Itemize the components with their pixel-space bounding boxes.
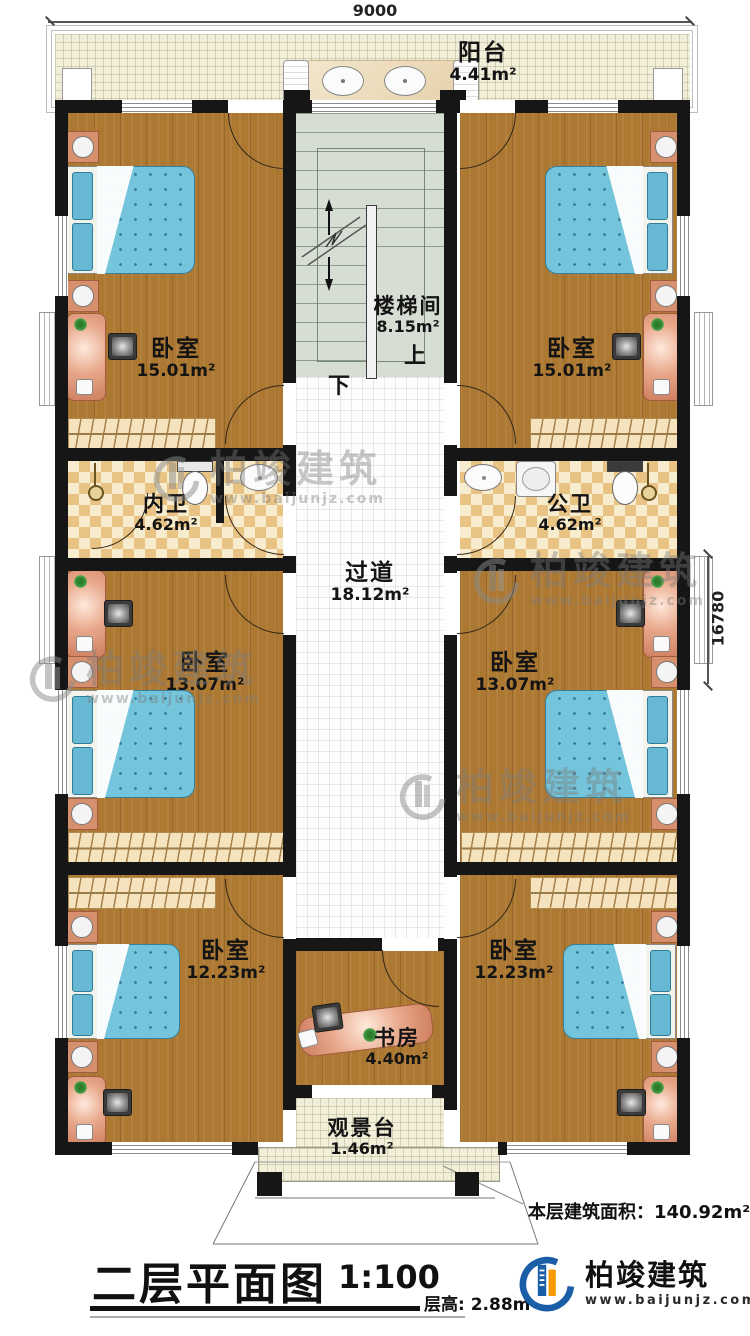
computer-monitor xyxy=(104,600,133,627)
window xyxy=(548,100,618,113)
window xyxy=(677,216,690,296)
room-area: 4.62m² xyxy=(134,516,197,534)
window xyxy=(55,216,68,296)
watermark-text: 柏竣建筑 xyxy=(210,450,385,488)
room-name: 公卫 xyxy=(538,492,601,516)
watermark-text: 柏竣建筑 xyxy=(456,768,631,806)
sink-icon xyxy=(464,464,502,491)
room-area: 12.23m² xyxy=(187,964,266,984)
dimension-top: 9000 xyxy=(340,1,410,20)
wardrobe xyxy=(530,877,678,909)
plant-icon xyxy=(74,1081,87,1094)
watermark: 柏竣建筑 www.baijunjz.com xyxy=(470,552,705,609)
room-area: 1.46m² xyxy=(328,1140,397,1158)
room-name: 过道 xyxy=(331,560,410,586)
room-label-bedroom-tl: 卧室 15.01m² xyxy=(137,336,216,382)
company-name: 柏竣建筑 xyxy=(585,1261,750,1290)
door-opening xyxy=(228,100,283,113)
window xyxy=(677,946,690,1038)
computer-monitor xyxy=(617,1089,646,1116)
area-leader-line xyxy=(438,1158,538,1210)
balcony-door-window xyxy=(312,100,436,113)
wardrobe xyxy=(68,418,216,450)
pillow xyxy=(72,223,93,270)
nightstand xyxy=(66,911,98,943)
lamp-icon xyxy=(76,1124,93,1140)
lamp-icon xyxy=(653,636,670,652)
dimension-line-top xyxy=(48,21,692,23)
dresser xyxy=(66,1076,106,1146)
wall xyxy=(444,862,690,875)
dresser xyxy=(66,570,106,658)
room-name: 观景台 xyxy=(328,1116,397,1140)
wall xyxy=(55,862,296,875)
stairs-up-label: 上 xyxy=(404,338,426,370)
sink-icon xyxy=(384,66,426,96)
company-url: www.baijunjz.com xyxy=(585,1293,750,1308)
window xyxy=(677,690,690,794)
door-opening xyxy=(283,573,296,635)
wardrobe xyxy=(68,877,216,909)
watermark-logo-icon xyxy=(470,556,520,606)
room-name: 卧室 xyxy=(187,938,266,964)
room-name: 卧室 xyxy=(475,938,554,964)
window xyxy=(507,1142,627,1155)
pillow xyxy=(647,696,668,743)
lamp-icon xyxy=(653,1124,670,1140)
shower-icon xyxy=(641,485,657,501)
room-area: 8.15m² xyxy=(374,318,443,336)
room-label-bedroom-bl: 卧室 12.23m² xyxy=(187,938,266,984)
dresser xyxy=(66,313,106,401)
room-label-corridor: 过道 18.12m² xyxy=(331,560,410,606)
nightstand xyxy=(66,1041,98,1073)
floor-plan: 9000 16780 xyxy=(0,0,750,1336)
bed xyxy=(67,166,195,274)
watermark-logo-icon xyxy=(396,772,446,822)
watermark-url: www.baijunjz.com xyxy=(456,809,631,825)
room-area: 13.07m² xyxy=(476,676,555,696)
computer-monitor xyxy=(311,1002,343,1033)
bed xyxy=(67,944,180,1039)
floor-area-note: 本层建筑面积：140.92m² xyxy=(528,1198,750,1224)
watermark-text: 柏竣建筑 xyxy=(86,650,261,688)
watermark-url: www.baijunjz.com xyxy=(530,593,705,609)
toilet-icon xyxy=(612,471,638,505)
room-label-view-deck: 观景台 1.46m² xyxy=(328,1116,397,1159)
room-name: 楼梯间 xyxy=(374,294,443,318)
pillow xyxy=(72,747,93,794)
lamp-icon xyxy=(76,379,93,395)
pillow xyxy=(650,950,671,992)
watermark-logo-icon xyxy=(150,454,200,504)
pillow xyxy=(650,994,671,1036)
nightstand xyxy=(67,131,99,163)
company-logo: 柏竣建筑 www.baijunjz.com xyxy=(515,1254,750,1314)
stairs-down-label: 下 xyxy=(328,368,350,400)
sink-icon xyxy=(322,66,364,96)
floor-area-value: 140.92m² xyxy=(654,1202,750,1223)
room-area: 12.23m² xyxy=(475,964,554,984)
company-logo-icon xyxy=(515,1254,575,1314)
plant-icon xyxy=(74,575,87,588)
door-opening xyxy=(444,383,457,445)
deck-opening xyxy=(312,1085,432,1098)
page-title: 二层平面图 xyxy=(92,1248,327,1312)
watermark: 柏竣建筑 www.baijunjz.com xyxy=(150,450,385,507)
porch-post xyxy=(455,1172,479,1196)
room-area: 4.41m² xyxy=(449,66,516,86)
door-opening xyxy=(283,383,296,445)
wardrobe xyxy=(461,832,679,865)
pillow xyxy=(72,994,93,1036)
window-bay xyxy=(694,312,713,406)
room-area: 4.62m² xyxy=(538,516,601,534)
door-opening xyxy=(444,877,457,939)
pillow xyxy=(647,223,668,270)
room-area: 15.01m² xyxy=(137,362,216,382)
room-name: 卧室 xyxy=(533,336,612,362)
room-name: 卧室 xyxy=(476,650,555,676)
door-opening xyxy=(283,877,296,939)
room-name: 卧室 xyxy=(137,336,216,362)
pillow xyxy=(647,747,668,794)
watermark-url: www.baijunjz.com xyxy=(86,691,261,707)
lamp-icon xyxy=(653,379,670,395)
window xyxy=(122,100,192,113)
computer-monitor xyxy=(103,1089,132,1116)
stair-break-arrows xyxy=(296,195,444,305)
pillow xyxy=(72,172,93,219)
room-area: 18.12m² xyxy=(331,586,410,606)
pillow xyxy=(647,172,668,219)
room-label-balcony: 阳台 4.41m² xyxy=(449,40,516,86)
watermark-text: 柏竣建筑 xyxy=(530,552,705,590)
room-area: 4.40m² xyxy=(365,1050,428,1068)
computer-monitor xyxy=(612,333,641,360)
bed xyxy=(545,166,673,274)
wardrobe xyxy=(68,832,285,865)
room-label-stairwell: 楼梯间 8.15m² xyxy=(374,294,443,337)
door-opening xyxy=(460,100,515,113)
room-label-bath-public: 公卫 4.62m² xyxy=(538,492,601,535)
title-underline xyxy=(90,1306,420,1311)
room-label-study: 书房 4.40m² xyxy=(365,1026,428,1069)
plant-icon xyxy=(74,318,87,331)
dimension-right: 16780 xyxy=(709,591,728,647)
nightstand xyxy=(66,798,98,830)
bed xyxy=(563,944,676,1039)
floor-area-label: 本层建筑面积： xyxy=(528,1202,654,1223)
wall xyxy=(55,558,296,571)
room-label-bedroom-tr: 卧室 15.01m² xyxy=(533,336,612,382)
nightstand xyxy=(67,280,99,312)
pillow xyxy=(72,950,93,992)
watermark: 柏竣建筑 www.baijunjz.com xyxy=(396,768,631,825)
room-label-bedroom-mr: 卧室 13.07m² xyxy=(476,650,555,696)
door-opening xyxy=(444,496,457,556)
porch-post xyxy=(257,1172,282,1196)
room-area: 15.01m² xyxy=(533,362,612,382)
door-opening xyxy=(444,573,457,635)
wall xyxy=(444,448,690,461)
plant-icon xyxy=(651,1081,664,1094)
watermark-logo-icon xyxy=(26,654,76,704)
watermark: 柏竣建筑 www.baijunjz.com xyxy=(26,650,261,707)
window xyxy=(112,1142,232,1155)
watermark-url: www.baijunjz.com xyxy=(210,491,385,507)
title-underline-thin xyxy=(90,1316,465,1318)
window xyxy=(55,946,68,1038)
plant-icon xyxy=(651,318,664,331)
wall xyxy=(284,90,310,102)
room-name: 阳台 xyxy=(449,40,516,66)
wardrobe xyxy=(530,418,678,450)
room-label-bedroom-br: 卧室 12.23m² xyxy=(475,938,554,984)
room-name: 书房 xyxy=(365,1026,428,1050)
computer-monitor xyxy=(108,333,137,360)
